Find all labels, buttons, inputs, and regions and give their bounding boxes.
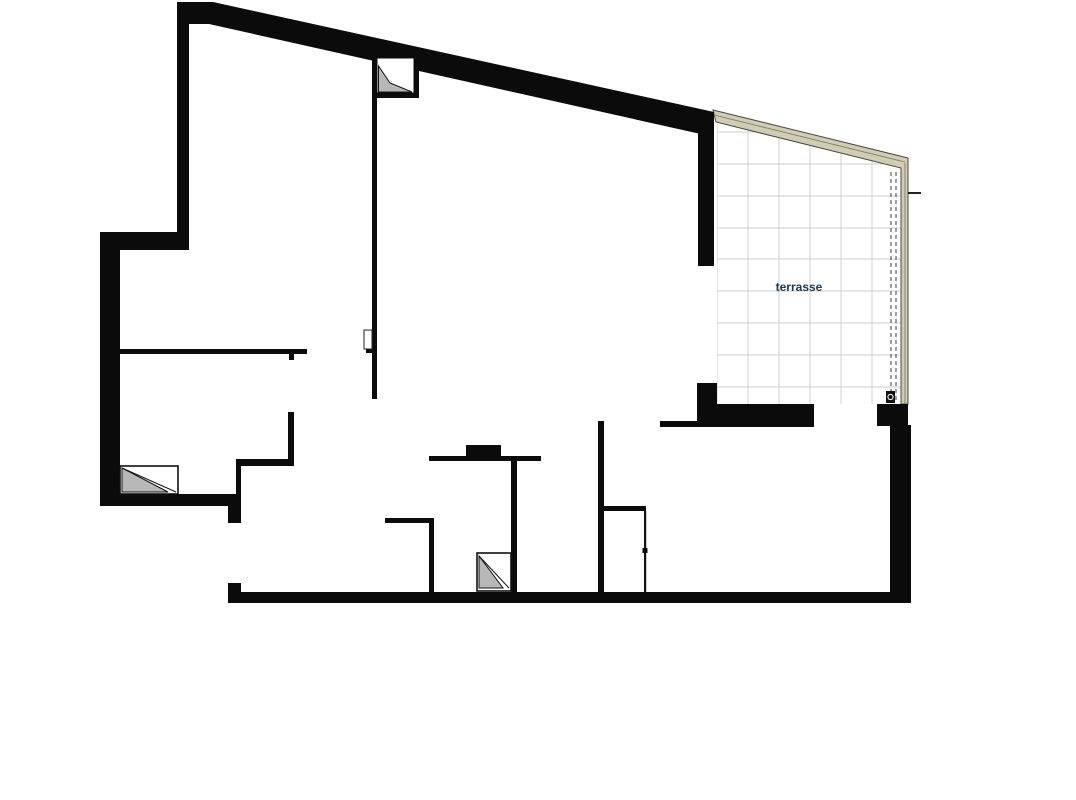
svg-text:terrasse: terrasse (776, 280, 823, 294)
